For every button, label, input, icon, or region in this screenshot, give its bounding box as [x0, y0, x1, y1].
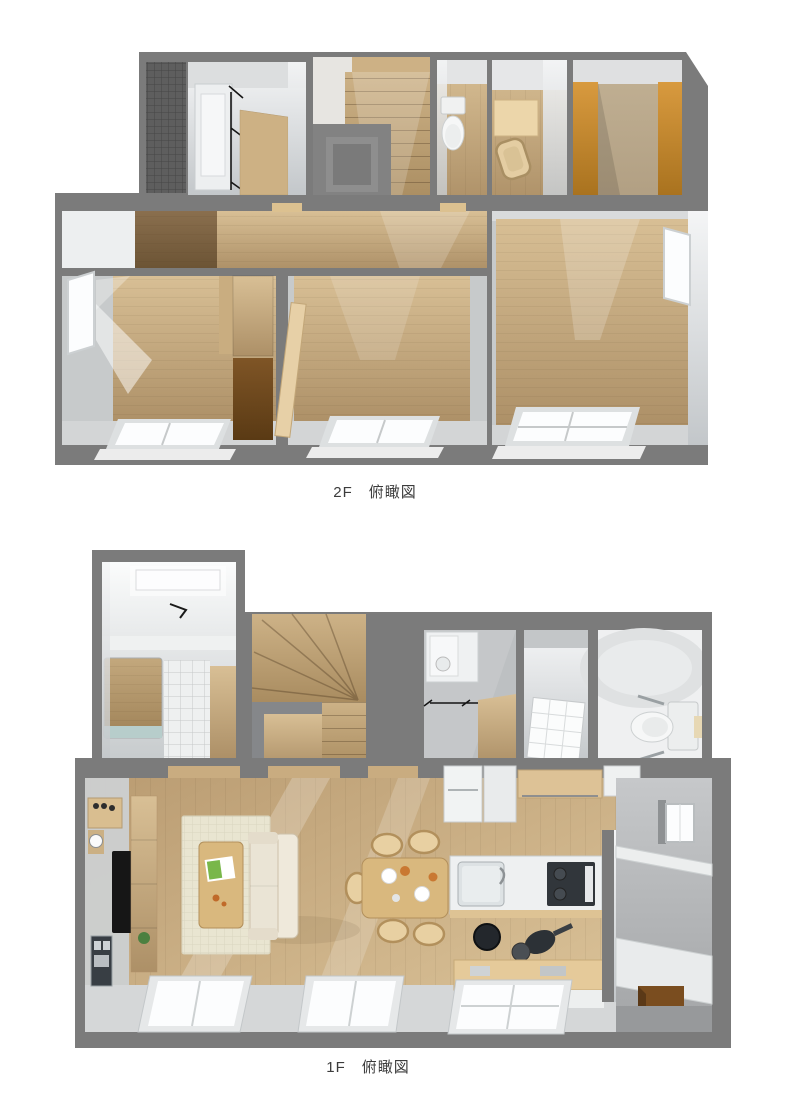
caption-2f: 2F 俯瞰図 — [333, 481, 417, 502]
1f-dining-chair — [378, 920, 408, 942]
1f-entrance-corridor — [602, 778, 712, 1032]
1f-bathroom — [102, 562, 236, 760]
1f-ceiling-beams — [168, 766, 418, 778]
2f-closet-dark — [233, 358, 273, 440]
2f-balcony — [146, 62, 186, 193]
2f-bedroom-right — [492, 211, 708, 459]
2f-right-wall-window — [664, 228, 690, 305]
1f-sofa — [248, 832, 298, 940]
2f-washroom-door — [240, 110, 288, 195]
floor-plan-1f-rendering — [0, 530, 787, 1070]
page: 2F 俯瞰図 — [0, 0, 787, 1107]
1f-fridge — [444, 766, 482, 822]
caption-1f: 1F 俯瞰図 — [326, 1056, 410, 1077]
2f-washroom — [188, 62, 306, 195]
1f-dining-chair — [409, 831, 439, 853]
2f-closet-upper — [233, 276, 273, 356]
1f-toilet-room — [580, 628, 708, 765]
1f-ceiling-light — [136, 570, 220, 590]
1f-wall-clock — [90, 835, 103, 848]
2f-desk-counter — [494, 100, 538, 136]
2f-door-leaf — [272, 203, 302, 212]
2f-bedroom-left — [62, 272, 276, 460]
2f-toilet-room — [437, 60, 487, 205]
2f-study-room — [492, 60, 567, 205]
1f-window-3 — [448, 980, 572, 1034]
2f-walk-in-closet — [573, 60, 682, 205]
1f-sliding-door — [527, 697, 585, 762]
2f-door-leaf — [440, 203, 466, 212]
1f-plant — [138, 932, 150, 944]
2f-bedroom-middle — [275, 276, 487, 458]
2f-stair-hall — [313, 57, 430, 205]
2f-closet-panel-right — [658, 82, 682, 205]
1f-dining-chair — [414, 923, 444, 945]
2f-bedroom-left-window — [106, 419, 231, 449]
1f-washroom — [424, 630, 516, 765]
2f-vanity-mirror — [201, 94, 225, 176]
1f-staircase — [252, 614, 366, 770]
2f-side-window — [68, 272, 94, 354]
floor-plan-2f-rendering — [0, 0, 787, 520]
1f-window-2 — [298, 976, 404, 1032]
1f-dining-chair — [372, 834, 402, 856]
1f-south-windows — [138, 976, 572, 1034]
1f-upper-cabinet — [518, 770, 602, 798]
2f-bedroom-right-window — [505, 407, 640, 446]
1f-wall-shelf — [88, 798, 122, 828]
1f-entry-hall — [524, 630, 588, 765]
2f-closet-panel-left — [573, 82, 598, 205]
2f-toilet-icon — [441, 97, 465, 150]
2f-bedroom-middle-window — [319, 416, 440, 447]
1f-coffee-table — [199, 842, 243, 928]
1f-window-1 — [138, 976, 252, 1032]
